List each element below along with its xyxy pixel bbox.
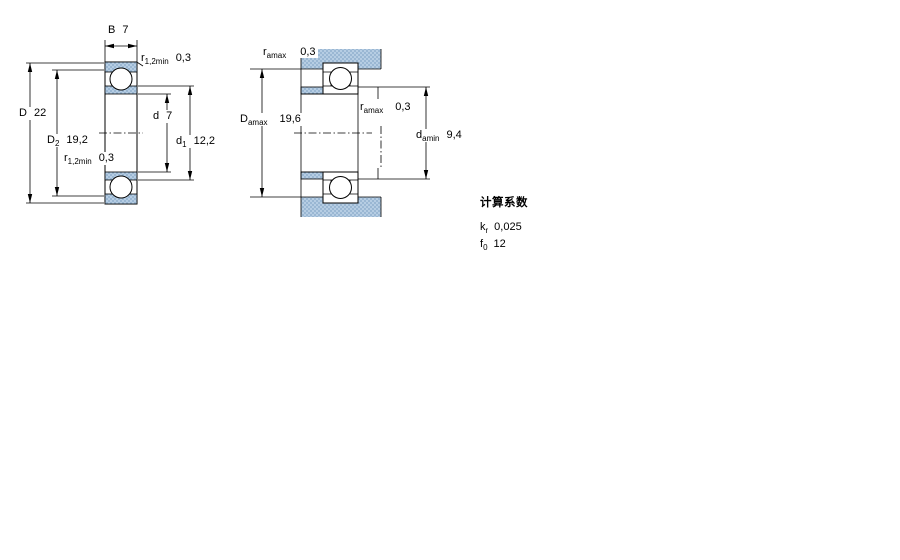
dim-label-Damax: Damax19,6 bbox=[238, 113, 303, 126]
dim-label-B: B7 bbox=[108, 24, 128, 37]
dim-label-d: d7 bbox=[151, 110, 174, 123]
dim-label-d1: d112,2 bbox=[174, 135, 217, 148]
factor-kr: kr0,025 bbox=[480, 219, 528, 236]
bearing-dimensions-drawing: B7 r1,2min0,3 D22 D219,2 d7 d112,2 r1,2m… bbox=[0, 0, 900, 560]
calculation-factors-title: 计算系数 bbox=[480, 194, 528, 210]
dim-label-r12min-top: r1,2min0,3 bbox=[141, 52, 191, 65]
dim-label-r12min-bottom: r1,2min0,3 bbox=[62, 152, 116, 165]
dim-label-D2: D219,2 bbox=[45, 134, 90, 147]
dim-label-ramax-mid: ramax0,3 bbox=[360, 101, 411, 114]
dimension-labels: B7 r1,2min0,3 D22 D219,2 d7 d112,2 r1,2m… bbox=[0, 0, 900, 560]
calculation-factors: 计算系数 kr0,025 f012 bbox=[480, 194, 528, 253]
dim-label-damin: damin9,4 bbox=[414, 129, 464, 142]
factor-f0: f012 bbox=[480, 236, 528, 253]
dim-label-D: D22 bbox=[17, 107, 48, 120]
dim-label-ramax-top: ramax0,3 bbox=[263, 46, 318, 59]
